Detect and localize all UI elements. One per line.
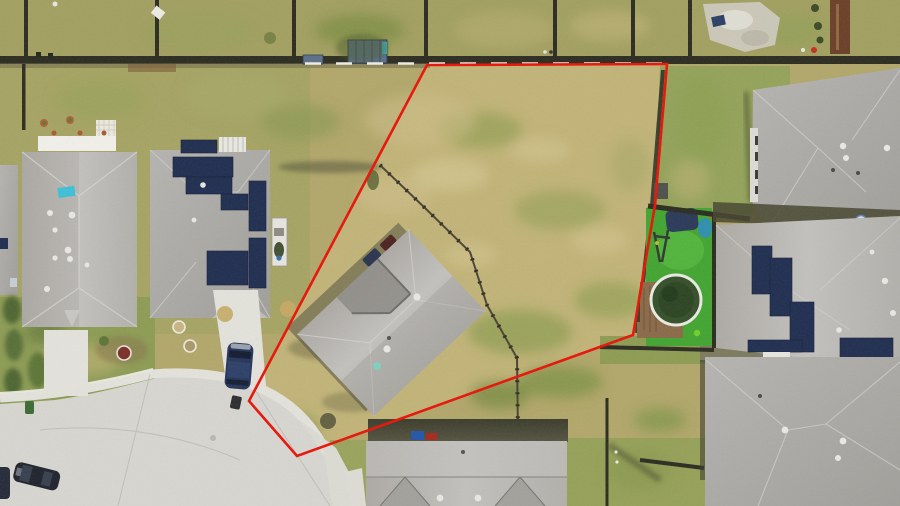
photo-grain	[0, 0, 900, 506]
aerial-photo	[0, 0, 900, 506]
aerial-photo-stage	[0, 0, 900, 506]
